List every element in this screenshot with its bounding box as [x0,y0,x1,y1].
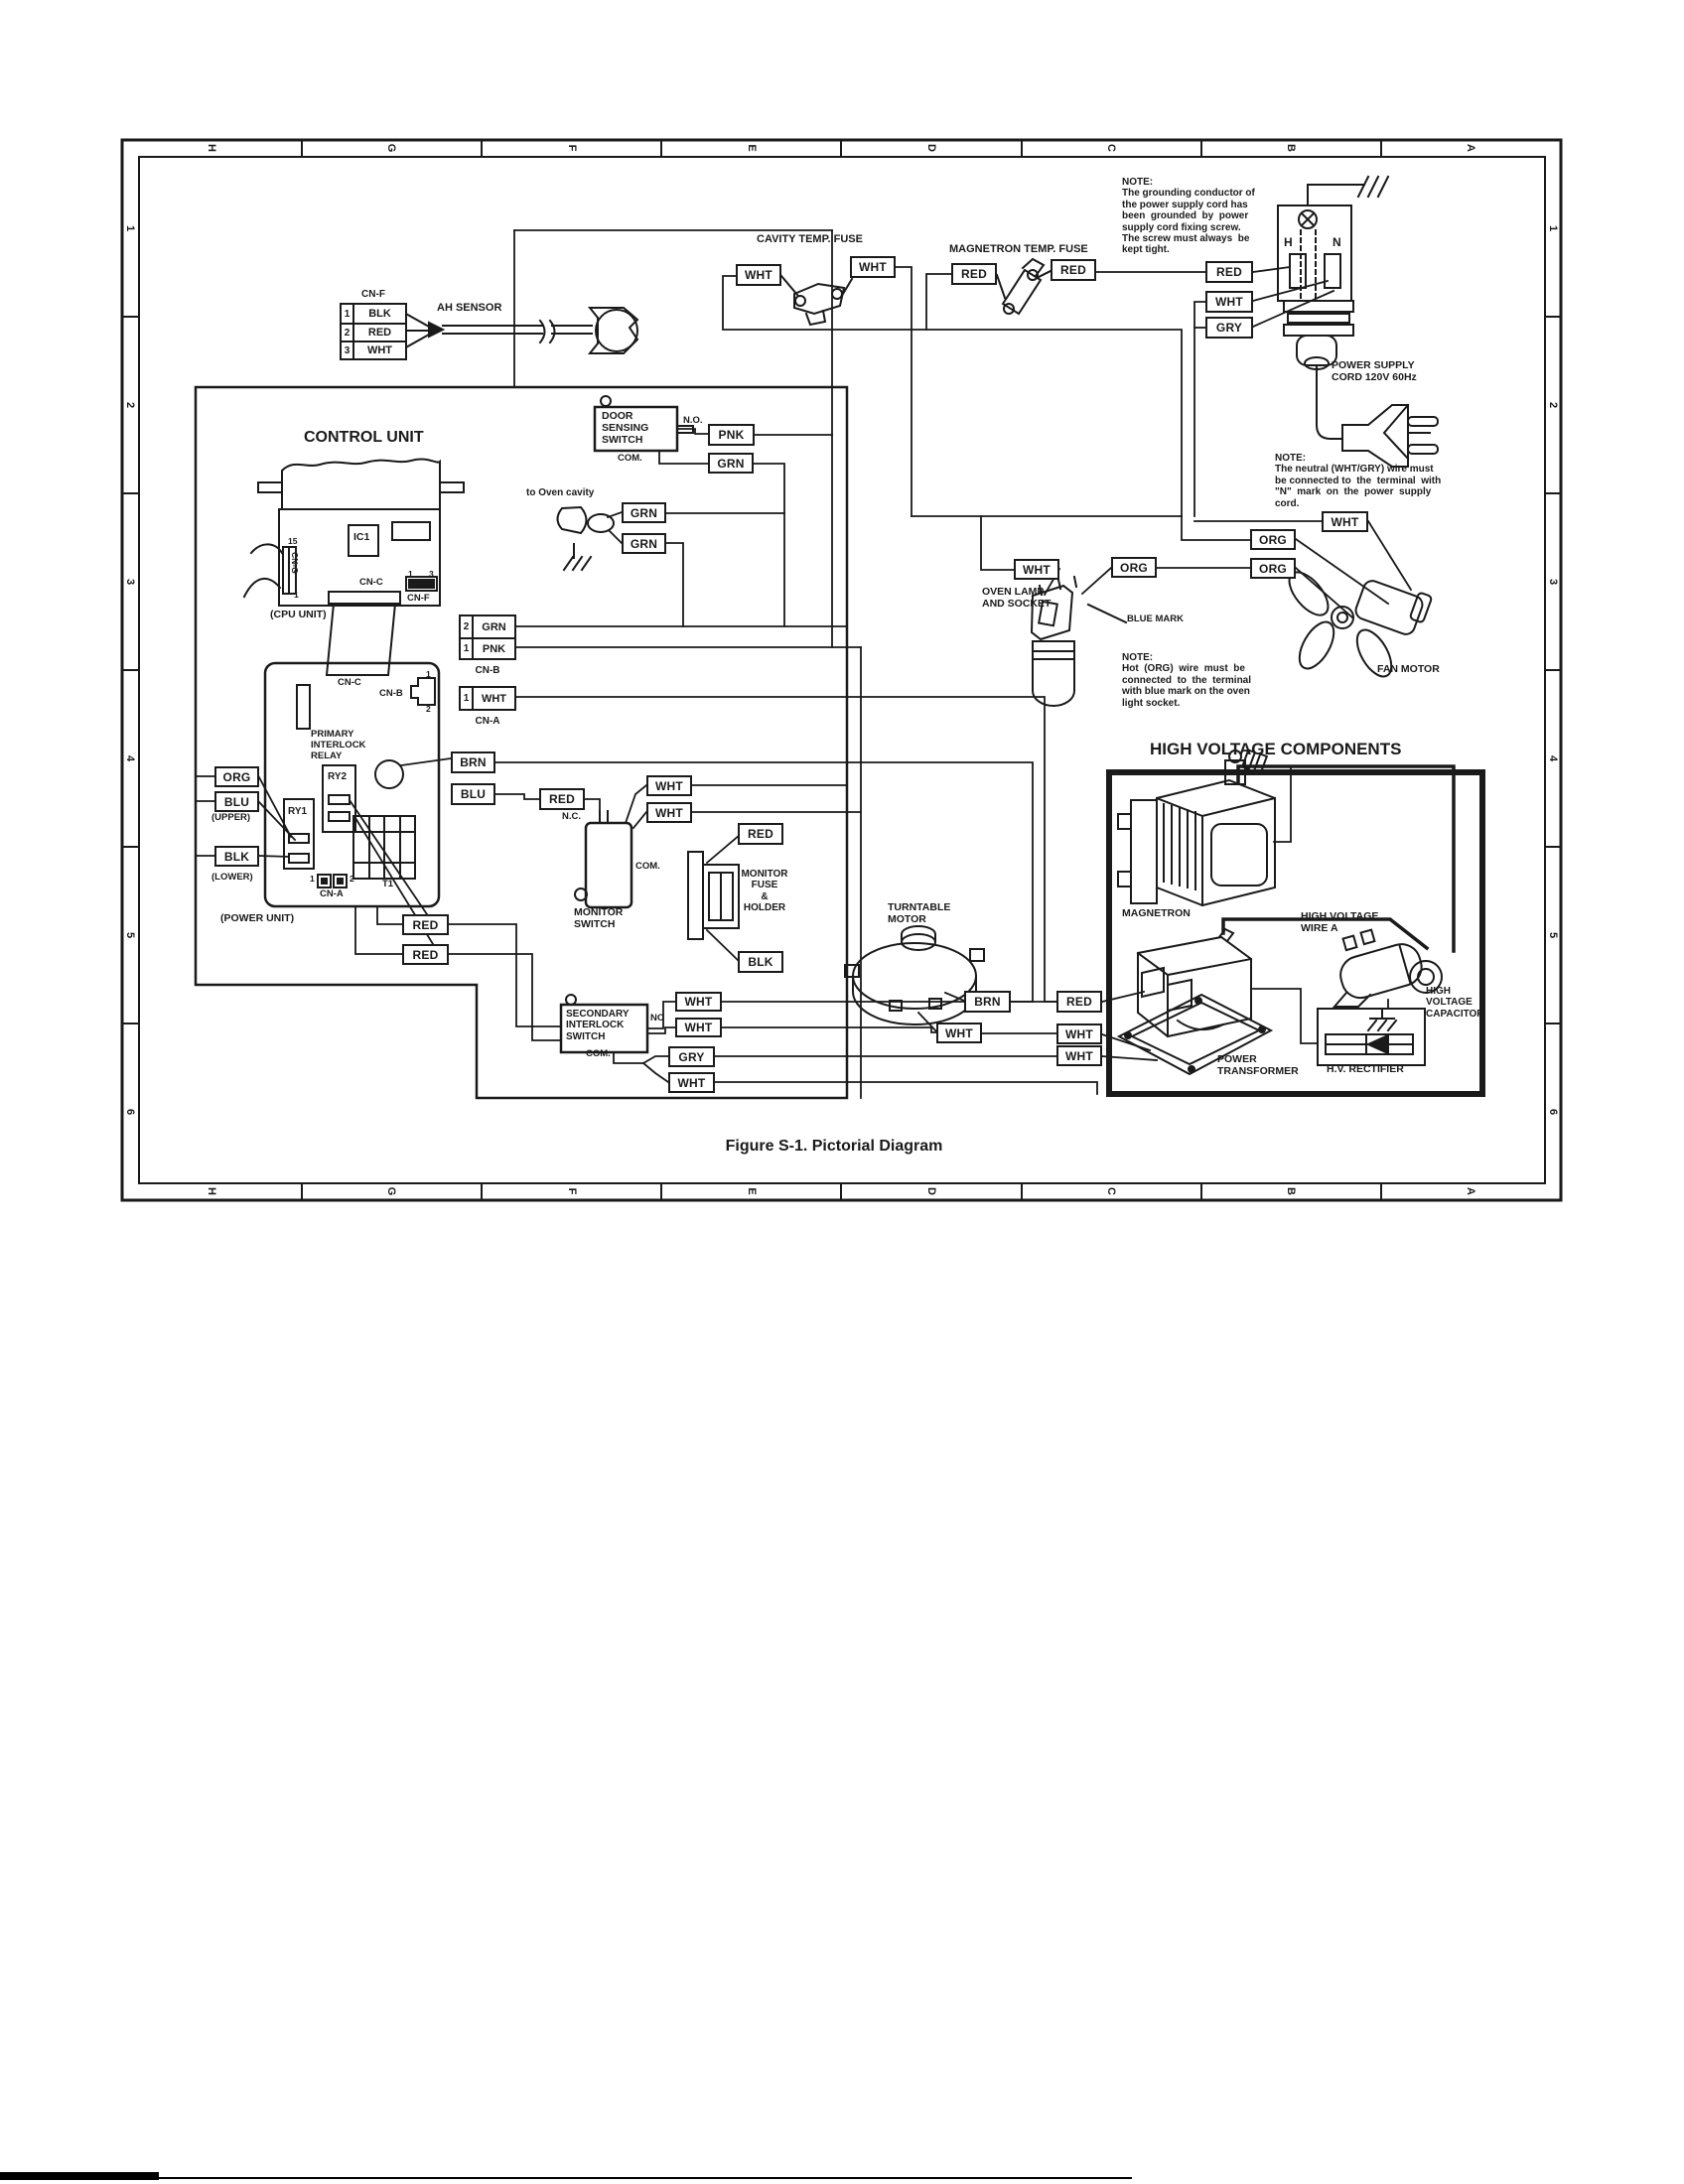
wire-label-org-9: ORG [1250,558,1296,579]
grid-letter-a-top: A [1465,144,1476,152]
power-supply-cord-label: POWER SUPPLY CORD 120V 60Hz [1332,360,1417,384]
cn-b-pin2: 2 [426,705,431,715]
wire-label-blu-19: BLU [214,791,259,812]
ic1-label: IC1 [353,532,369,544]
primary-interlock-relay-label: PRIMARY INTERLOCK RELAY [311,730,365,761]
wire-label-wht-22: WHT [646,775,692,796]
cn-g-pin15: 15 [288,537,297,547]
magnetron-label: MAGNETRON [1122,908,1191,920]
wire-label-red-21: RED [539,788,585,810]
grid-letter-f-bottom: F [566,1188,578,1195]
note-grounding: NOTE: The grounding conductor of the pow… [1122,177,1255,256]
pin-table-caption-cn-a: CN-A [455,716,520,727]
labels-layer: WHTWHTREDREDREDWHTGRYWHTORGORGWHTORGPNKG… [0,0,1684,2184]
wire-label-blk-25: BLK [738,951,783,973]
pin-table-cn-f: 1BLK2RED3WHTCN-F [340,303,407,360]
wire-label-brn-16: BRN [451,751,495,773]
com-label-secondary: COM. [586,1049,611,1060]
monitor-switch-label: MONITOR SWITCH [574,907,623,931]
grid-number-4-right: 4 [1547,755,1559,761]
pin-table-cn-b: 2GRN1PNKCN-B [459,614,516,660]
grid-letter-h-bottom: H [206,1187,217,1195]
pin-table-caption-cn-b: CN-B [455,665,520,676]
wire-label-gry-30: GRY [668,1046,715,1067]
wire-label-red-3: RED [1051,259,1096,281]
scan-artifact-line [159,2177,1132,2179]
cn-a-conn-label: CN-A [320,889,344,900]
wire-label-wht-35: WHT [1056,1024,1102,1044]
grid-number-2-left: 2 [124,402,136,408]
cn-c-label-top: CN-C [359,578,383,589]
cn-b-pin1: 1 [426,670,431,680]
wire-label-red-2: RED [951,263,997,285]
grid-number-5-right: 5 [1547,932,1559,938]
scan-artifact [0,2172,159,2180]
wire-label-wht-23: WHT [646,802,692,823]
cn-g-pin1: 1 [294,591,299,601]
wire-label-wht-36: WHT [1056,1045,1102,1066]
wire-label-grn-15: GRN [622,533,666,554]
wire-label-wht-31: WHT [668,1072,715,1093]
wire-label-wht-10: WHT [1014,559,1059,580]
wire-label-org-18: ORG [214,766,259,787]
wire-label-brn-32: BRN [964,991,1011,1013]
ry2-label: RY2 [328,771,347,782]
grid-letter-h-top: H [206,144,217,152]
grid-letter-c-top: C [1105,144,1117,152]
wire-label-red-26: RED [402,914,449,935]
com-label-monitor: COM. [635,862,660,873]
wire-label-wht-33: WHT [936,1023,982,1043]
wire-label-wht-0: WHT [736,264,781,286]
cn-f-bottom-label: CN-F [407,594,430,605]
lower-label: (LOWER) [211,873,253,884]
grid-letter-e-top: E [746,144,758,151]
grid-number-4-left: 4 [124,755,136,761]
wire-label-wht-28: WHT [675,992,722,1012]
grid-number-6-left: 6 [124,1109,136,1115]
grid-letter-g-top: G [385,144,397,153]
wire-label-org-8: ORG [1250,529,1296,550]
grid-letter-b-bottom: B [1285,1187,1297,1195]
cpu-unit-label: (CPU UNIT) [270,610,327,621]
ah-sensor-label: AH SENSOR [437,302,501,315]
wire-label-gry-6: GRY [1205,317,1253,339]
grid-letter-f-top: F [566,145,578,152]
note-hot-wire: NOTE: Hot (ORG) wire must be connected t… [1122,652,1251,709]
grid-letter-e-bottom: E [746,1187,758,1194]
grid-number-1-right: 1 [1547,225,1559,231]
grid-letter-c-bottom: C [1105,1187,1117,1195]
grid-number-3-left: 3 [124,579,136,585]
secondary-interlock-switch-label: SECONDARY INTERLOCK SWITCH [566,1009,630,1042]
grid-number-1-left: 1 [124,225,136,231]
pin-table-caption-cn-f: CN-F [336,289,411,300]
wire-label-grn-13: GRN [708,453,754,474]
ry1-label: RY1 [288,806,307,817]
monitor-fuse-holder-label: MONITOR FUSE & HOLDER [737,869,792,914]
cn-b-conn-label: CN-B [379,689,403,700]
wire-label-wht-7: WHT [1322,511,1368,532]
grid-letter-d-bottom: D [925,1187,937,1195]
wire-label-red-34: RED [1056,991,1102,1013]
wire-label-wht-5: WHT [1205,291,1253,313]
cn-g-label: CN-G [289,552,299,574]
service-manual-page: WHTWHTREDREDREDWHTGRYWHTORGORGWHTORGPNKG… [0,0,1684,2184]
oven-lamp-label: OVEN LAMP AND SOCKET [982,587,1051,611]
cn-c-label-bottom: CN-C [338,678,361,689]
hv-rectifier-label: H.V. RECTIFIER [1327,1064,1404,1076]
turntable-motor-label: TURNTABLE MOTOR [888,902,950,926]
wire-label-blu-17: BLU [451,783,495,805]
no-label-secondary: NO [650,1014,664,1024]
note-neutral: NOTE: The neutral (WHT/GRY) wire must be… [1275,453,1441,509]
grid-number-3-right: 3 [1547,579,1559,585]
to-oven-cavity-label: to Oven cavity [526,487,594,498]
grid-number-6-right: 6 [1547,1109,1559,1115]
grid-number-2-right: 2 [1547,402,1559,408]
wire-label-wht-1: WHT [850,256,896,278]
fan-motor-label: FAN MOTOR [1377,664,1440,676]
grid-letter-g-bottom: G [385,1187,397,1196]
upper-label: (UPPER) [211,813,250,824]
grid-number-5-left: 5 [124,932,136,938]
blue-mark-label: BLUE MARK [1127,614,1184,625]
power-unit-label: (POWER UNIT) [220,913,294,925]
power-transformer-label: POWER TRANSFORMER [1217,1054,1299,1078]
figure-caption: Figure S-1. Pictorial Diagram [626,1138,1043,1156]
com-label-door: COM. [618,454,642,465]
wire-label-pnk-12: PNK [708,424,755,446]
wire-label-blk-20: BLK [214,846,259,867]
no-label-door: N.O. [683,416,703,427]
terminal-n-label: N [1333,236,1341,250]
pin-table-cn-a: 1WHTCN-A [459,686,516,711]
grid-letter-b-top: B [1285,144,1297,152]
wire-label-red-24: RED [738,823,783,845]
t1-label: T1 [382,880,393,890]
terminal-h-label: H [1284,236,1293,250]
cn-a-pin1: 1 [310,875,315,885]
wire-label-org-11: ORG [1111,557,1157,578]
control-unit-label: CONTROL UNIT [304,429,424,447]
wire-label-red-4: RED [1205,261,1253,283]
grid-letter-d-top: D [925,144,937,152]
grid-letter-a-bottom: A [1465,1187,1476,1195]
cavity-fuse-label: CAVITY TEMP. FUSE [757,233,863,246]
hv-wire-a-label: HIGH VOLTAGE WIRE A [1301,911,1378,935]
magnetron-fuse-label: MAGNETRON TEMP. FUSE [949,243,1088,256]
cn-f-pin3: 3 [429,570,434,580]
wire-label-red-27: RED [402,944,449,965]
cn-a-pin2: 2 [350,875,354,885]
wire-label-grn-14: GRN [622,502,666,523]
hv-capacitor-label: HIGH VOLTAGE CAPACITOR [1426,986,1484,1020]
wire-label-wht-29: WHT [675,1018,722,1037]
door-sensing-switch-label: DOOR SENSING SWITCH [602,411,648,447]
hv-components-title: HIGH VOLTAGE COMPONENTS [1150,740,1401,758]
cn-f-pin1: 1 [408,570,413,580]
nc-label: N.C. [562,812,581,823]
